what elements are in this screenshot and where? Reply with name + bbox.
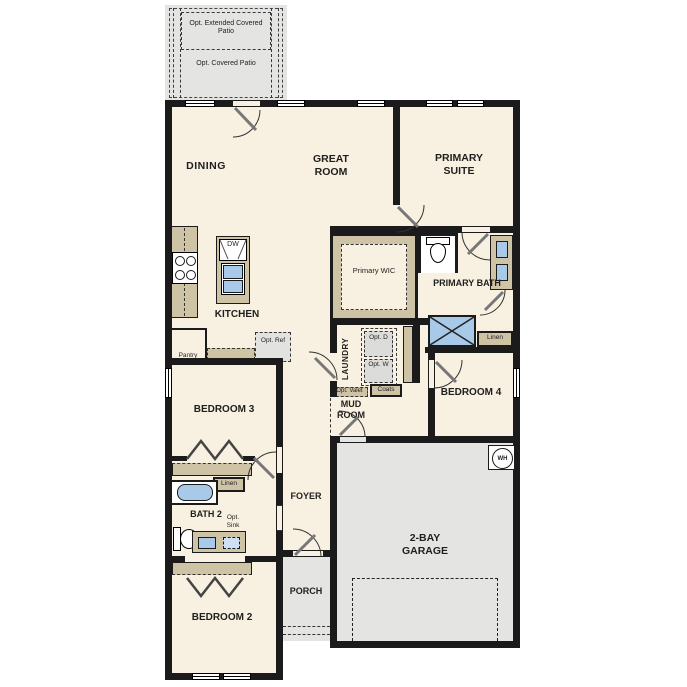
extended-patio-label: Opt. Extended Covered Patio	[186, 20, 266, 37]
wall-laundry-right	[413, 322, 420, 383]
porch-steps	[283, 626, 330, 635]
opt-sink-label: Opt. Sink	[220, 514, 246, 530]
bed3-closet-shelf	[172, 463, 252, 476]
wall-suite-divider	[393, 107, 400, 205]
wall-bed3-closet	[165, 456, 187, 461]
wall-bed3-closet	[243, 456, 255, 461]
wall-kitchen-bed3	[165, 358, 283, 365]
patio-post-left	[173, 8, 181, 98]
wall-garage-bottom	[330, 641, 520, 648]
porch-label: PORCH	[284, 586, 328, 597]
opt-washer-label: Opt. W	[366, 361, 391, 369]
wall-bed2-top	[165, 556, 185, 562]
hall-linen-label: Linen	[215, 480, 243, 488]
wall-bed4-top	[425, 347, 520, 353]
wall-corridor	[330, 325, 337, 353]
window	[426, 100, 453, 107]
primary-linen-label: Linen	[479, 334, 511, 342]
window	[357, 100, 385, 107]
cased-opening	[277, 505, 282, 531]
opt-ref-label: Opt. Ref	[260, 337, 286, 345]
shower	[428, 315, 476, 347]
window	[192, 673, 220, 680]
stove-burner	[186, 256, 196, 266]
foyer-label: FOYER	[284, 491, 328, 502]
window	[185, 100, 215, 107]
wall-corridor	[330, 381, 337, 397]
bed2-closet-shelf	[172, 562, 252, 575]
water-heater: WH	[492, 448, 513, 469]
hall-cabinet	[403, 326, 413, 383]
bath2-opt-sink	[223, 537, 240, 549]
door-opening	[340, 437, 366, 442]
bedroom3-label: BEDROOM 3	[180, 404, 268, 416]
garage-label: 2-BAY GARAGE	[392, 532, 458, 557]
bath2-sink	[198, 537, 216, 549]
patio-door-opening	[233, 101, 260, 106]
great-room-label: GREAT ROOM	[300, 153, 362, 178]
window	[457, 100, 484, 107]
stove-burner	[175, 270, 185, 280]
opt-dryer-label: Opt. D	[366, 334, 391, 342]
door-opening	[277, 447, 282, 473]
dishwasher-label: DW	[219, 241, 247, 249]
water-heater-label: WH	[498, 456, 508, 462]
primary-sink	[496, 241, 508, 258]
wall-bed2-top	[245, 556, 283, 562]
garage-door-area	[352, 578, 498, 641]
primary-bath-label: PRIMARY BATH	[432, 278, 502, 289]
primary-wic-label: Primary WIC	[349, 266, 399, 275]
window	[277, 100, 305, 107]
dining-label: DINING	[169, 160, 243, 173]
mud-room-label: MUD ROOM	[329, 399, 373, 421]
door-opening	[429, 360, 434, 388]
bedroom4-label: BEDROOM 4	[430, 387, 512, 399]
wall-mid	[330, 226, 520, 233]
bathtub-basin	[177, 484, 213, 501]
patio-post-right	[271, 8, 279, 98]
wall-porch-right	[330, 550, 337, 648]
island-sink-basin	[223, 280, 243, 293]
mud-room-dashed-edge	[330, 398, 331, 438]
door-opening	[462, 227, 490, 232]
window	[223, 673, 251, 680]
stove-burner	[175, 256, 185, 266]
laundry-label: LAUNDRY	[341, 330, 355, 388]
front-door-opening	[293, 551, 323, 556]
island-sink-basin	[223, 265, 243, 279]
primary-wic-inner	[341, 244, 407, 310]
window	[165, 368, 172, 398]
floor-plan: Opt. Extended Covered Patio Opt. Covered…	[0, 0, 687, 687]
kitchen-label: KITCHEN	[198, 309, 276, 321]
coats-label: Coats	[371, 386, 401, 394]
primary-suite-label: PRIMARY SUITE	[424, 152, 494, 177]
window	[513, 368, 520, 398]
stove-burner	[186, 270, 196, 280]
bedroom2-label: BEDROOM 2	[178, 612, 266, 624]
bath2-label: BATH 2	[189, 509, 223, 520]
covered-patio-label: Opt. Covered Patio	[186, 60, 266, 68]
